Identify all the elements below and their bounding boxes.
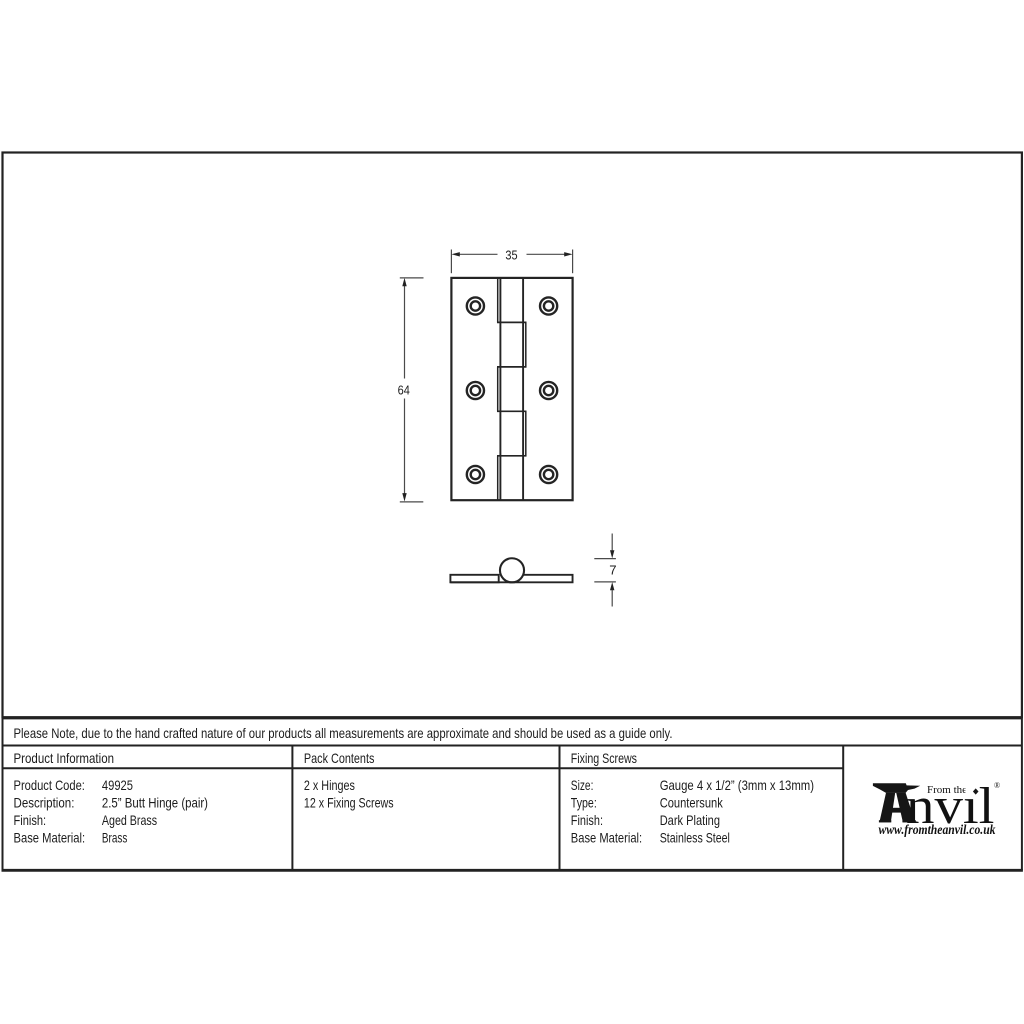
svg-text:Finish:: Finish: bbox=[571, 812, 603, 828]
svg-text:2 x Hinges: 2 x Hinges bbox=[304, 777, 355, 793]
svg-text:Product Code:: Product Code: bbox=[14, 777, 85, 793]
svg-text:Fixing Screws: Fixing Screws bbox=[571, 750, 637, 766]
svg-text:Base Material:: Base Material: bbox=[14, 830, 86, 846]
svg-text:2.5” Butt Hinge (pair): 2.5” Butt Hinge (pair) bbox=[102, 795, 208, 811]
svg-text:Base Material:: Base Material: bbox=[571, 830, 642, 846]
svg-text:From the: From the bbox=[927, 784, 967, 796]
svg-text:Pack Contents: Pack Contents bbox=[304, 750, 375, 766]
svg-text:Dark Plating: Dark Plating bbox=[660, 812, 720, 828]
svg-text:Gauge 4 x 1/2” (3mm x 13mm): Gauge 4 x 1/2” (3mm x 13mm) bbox=[660, 777, 814, 793]
svg-text:Brass: Brass bbox=[102, 830, 127, 846]
svg-text:7: 7 bbox=[609, 563, 616, 578]
svg-text:49925: 49925 bbox=[102, 777, 133, 793]
svg-text:Description:: Description: bbox=[14, 795, 75, 811]
svg-text:Aged Brass: Aged Brass bbox=[102, 812, 157, 828]
svg-text:Please Note, due to the hand c: Please Note, due to the hand crafted nat… bbox=[14, 725, 673, 741]
svg-text:12 x Fixing Screws: 12 x Fixing Screws bbox=[304, 795, 394, 811]
svg-text:®: ® bbox=[994, 781, 1000, 790]
svg-text:35: 35 bbox=[505, 248, 517, 263]
svg-text:64: 64 bbox=[398, 383, 410, 398]
svg-text:Product Information: Product Information bbox=[14, 750, 115, 766]
svg-text:Stainless Steel: Stainless Steel bbox=[660, 830, 730, 846]
svg-text:Type:: Type: bbox=[571, 795, 597, 811]
svg-text:Countersunk: Countersunk bbox=[660, 795, 724, 811]
svg-text:Finish:: Finish: bbox=[14, 812, 47, 828]
svg-text:www.fromtheanvil.co.uk: www.fromtheanvil.co.uk bbox=[879, 823, 996, 838]
svg-text:Size:: Size: bbox=[571, 777, 594, 793]
